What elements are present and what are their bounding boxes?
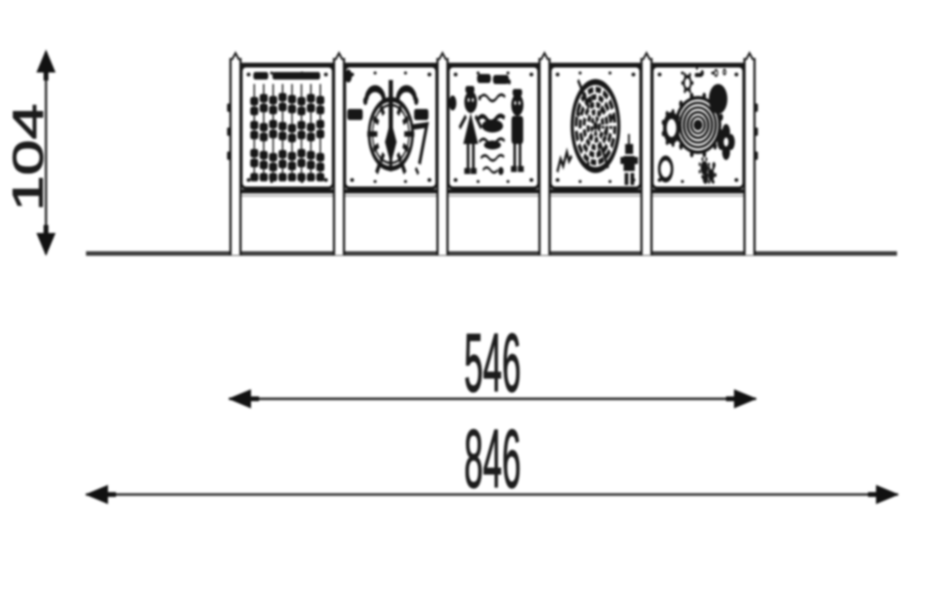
svg-text:546: 546 bbox=[464, 318, 521, 410]
svg-text:846: 846 bbox=[464, 414, 521, 506]
svg-text:104: 104 bbox=[4, 104, 51, 212]
